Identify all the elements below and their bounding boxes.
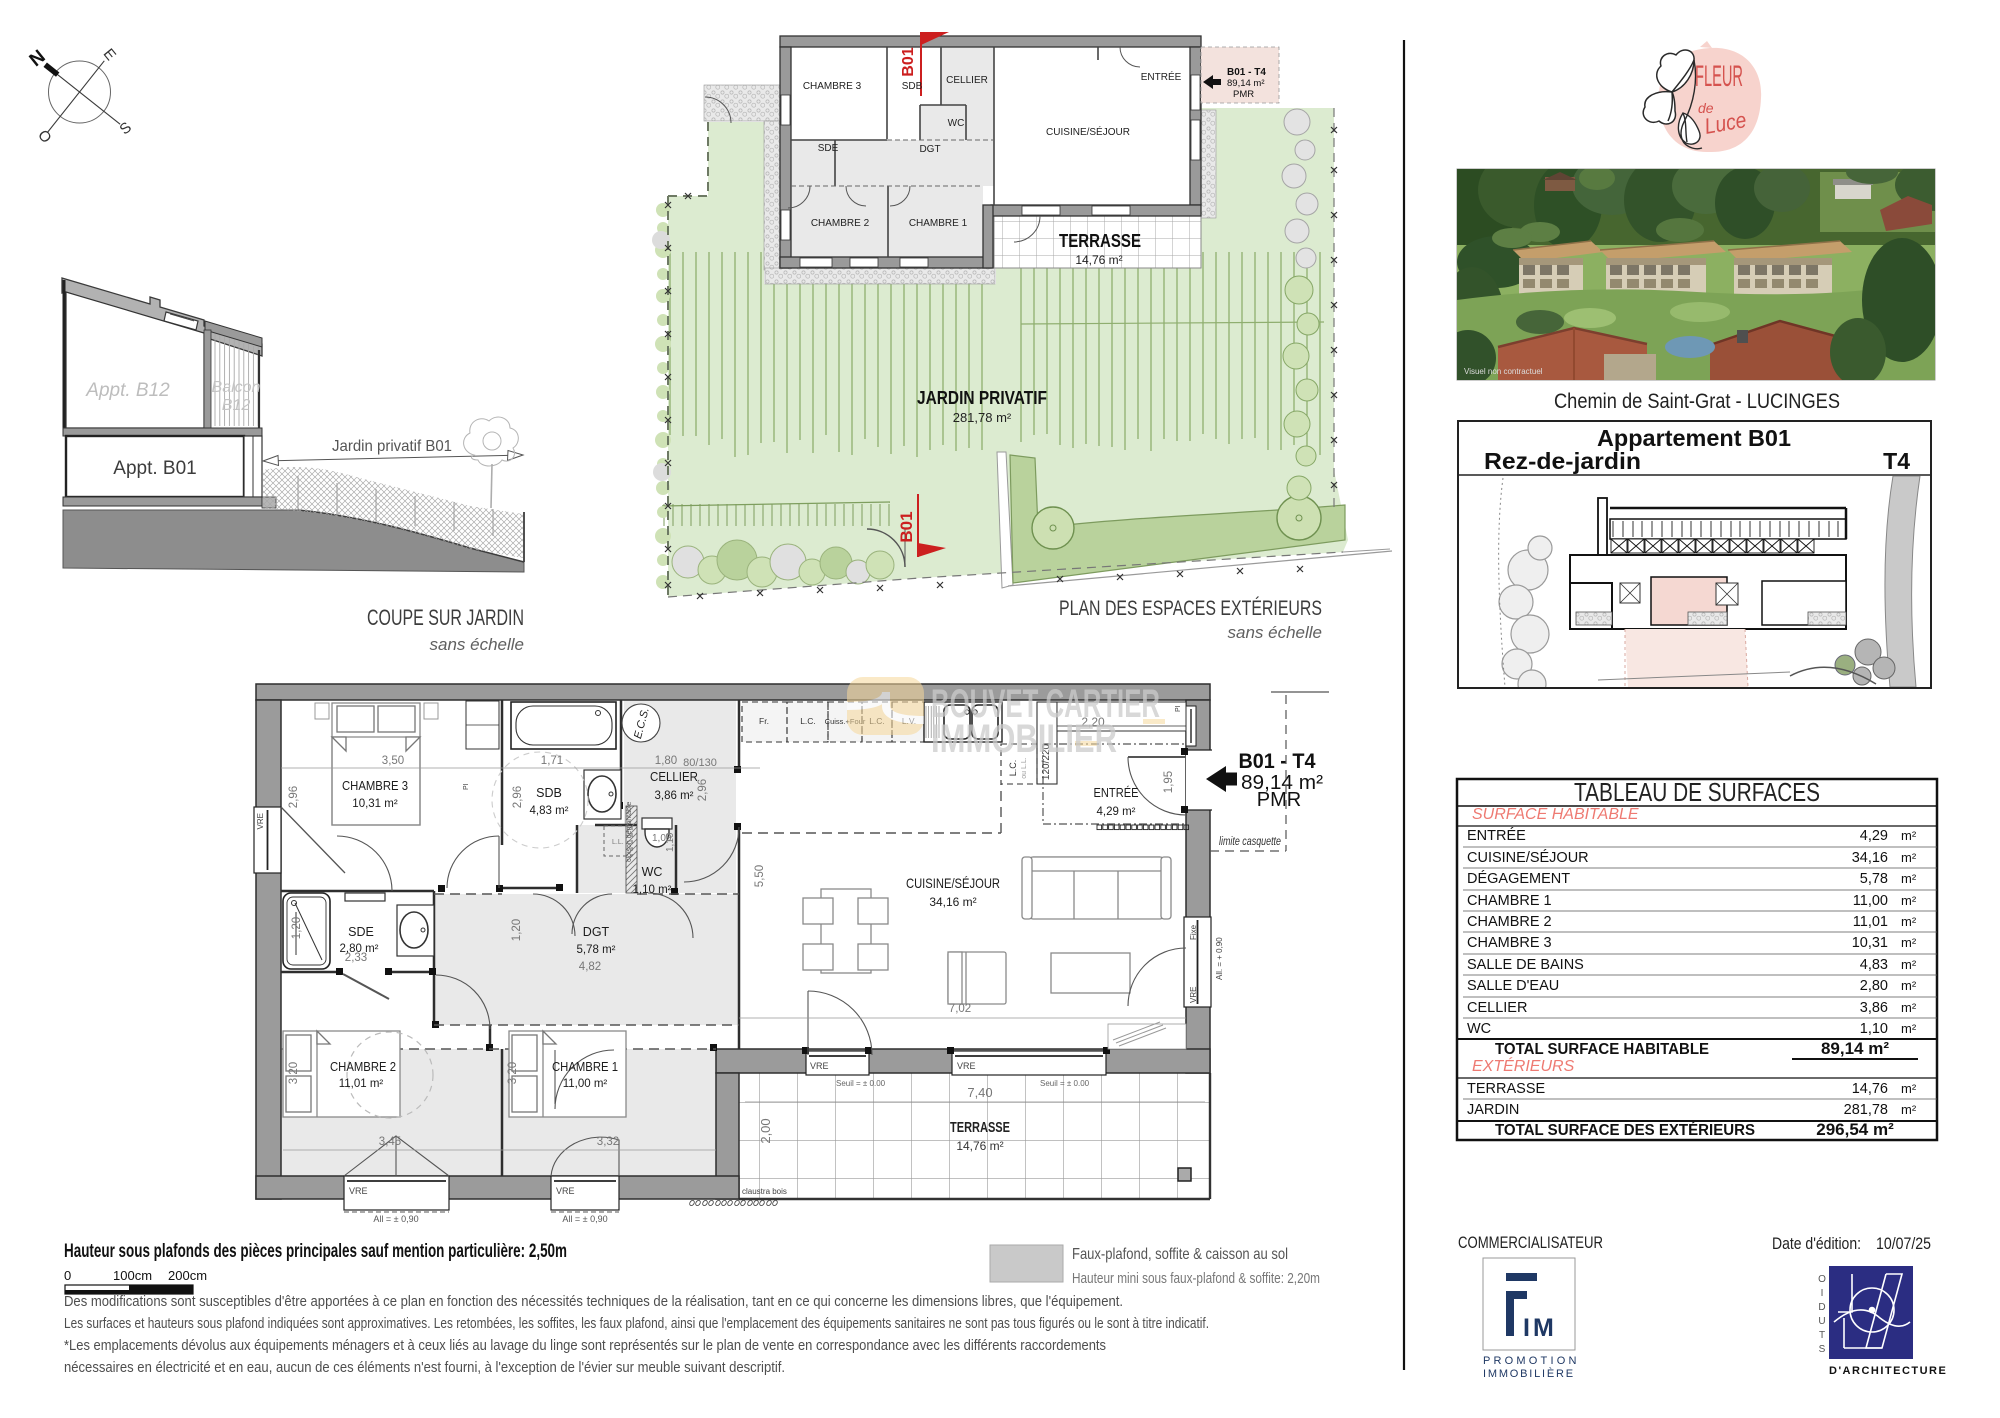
svg-text:VRE: VRE (556, 1186, 575, 1196)
svg-text:WC: WC (948, 118, 965, 129)
svg-text:SURFACE HABITABLE: SURFACE HABITABLE (1472, 806, 1639, 823)
svg-text:CELLIER: CELLIER (1467, 1000, 1527, 1016)
svg-text:100cm: 100cm (113, 1268, 152, 1283)
svg-text:m²: m² (1901, 828, 1917, 843)
svg-text:Jardin privatif B01: Jardin privatif B01 (332, 438, 452, 455)
svg-text:VRE: VRE (810, 1061, 829, 1071)
svg-text:2,96: 2,96 (288, 786, 300, 808)
svg-text:All = ± 0,90: All = ± 0,90 (373, 1214, 418, 1224)
svg-text:5,50: 5,50 (754, 865, 766, 887)
svg-text:14,76: 14,76 (1852, 1081, 1888, 1097)
svg-text:CUISINE/SÉJOUR: CUISINE/SÉJOUR (906, 875, 1000, 891)
svg-text:sans échelle: sans échelle (1227, 623, 1322, 642)
svg-text:4,82: 4,82 (579, 961, 601, 973)
svg-text:CHAMBRE 3: CHAMBRE 3 (342, 779, 408, 793)
svg-text:TERRASSE: TERRASSE (950, 1119, 1010, 1136)
svg-text:34,16 m²: 34,16 m² (929, 895, 976, 909)
svg-text:Les surfaces et hauteurs sous: Les surfaces et hauteurs sous plafond in… (64, 1315, 1209, 1332)
svg-text:Seuil = ± 0.00: Seuil = ± 0.00 (836, 1079, 886, 1088)
svg-text:14,76 m²: 14,76 m² (956, 1139, 1003, 1153)
svg-text:ENTRÉE: ENTRÉE (1141, 70, 1182, 83)
svg-text:7,02: 7,02 (949, 1003, 971, 1015)
svg-text:COUPE SUR JARDIN: COUPE SUR JARDIN (367, 605, 524, 630)
svg-text:sans échelle: sans échelle (429, 635, 524, 654)
svg-text:14,76 m²: 14,76 m² (1075, 253, 1122, 267)
svg-text:m²: m² (1901, 914, 1917, 929)
svg-text:10,31 m²: 10,31 m² (352, 798, 398, 810)
svg-text:m²: m² (1901, 893, 1917, 908)
svg-text:296,54 m²: 296,54 m² (1816, 1120, 1894, 1139)
svg-text:11,00 m²: 11,00 m² (563, 1078, 608, 1090)
svg-text:m²: m² (1901, 978, 1917, 993)
svg-text:m²: m² (1901, 871, 1917, 886)
svg-text:2,80 m²: 2,80 m² (340, 943, 379, 955)
svg-text:PMR: PMR (1233, 89, 1254, 100)
svg-text:WC: WC (642, 865, 663, 879)
svg-text:Rez-de-jardin: Rez-de-jardin (1484, 448, 1641, 474)
svg-text:1,20: 1,20 (511, 919, 523, 941)
svg-text:200cm: 200cm (168, 1268, 207, 1283)
svg-text:m²: m² (1901, 1081, 1917, 1096)
svg-text:L.C.: L.C. (800, 716, 816, 726)
svg-text:Appt. B12: Appt. B12 (85, 380, 170, 401)
svg-text:PI: PI (463, 783, 470, 790)
svg-text:TOTAL SURFACE DES EXTÉRIEURS: TOTAL SURFACE DES EXTÉRIEURS (1495, 1120, 1755, 1139)
svg-text:4,83 m²: 4,83 m² (530, 805, 569, 817)
svg-text:Visuel non contractuel: Visuel non contractuel (1464, 367, 1543, 376)
svg-text:TERRASSE: TERRASSE (1467, 1081, 1545, 1097)
svg-text:SDE: SDE (818, 143, 839, 154)
svg-text:1,10: 1,10 (1860, 1021, 1888, 1037)
svg-text:1,71: 1,71 (541, 755, 563, 767)
svg-text:5,78: 5,78 (1860, 871, 1888, 887)
svg-text:JARDIN: JARDIN (1467, 1102, 1519, 1118)
svg-text:B12: B12 (222, 397, 251, 414)
svg-text:4,29 m²: 4,29 m² (1097, 806, 1136, 818)
svg-text:3,50: 3,50 (382, 755, 404, 767)
svg-text:89,14 m²: 89,14 m² (1227, 78, 1265, 89)
svg-text:80/130: 80/130 (683, 757, 717, 769)
svg-text:Appt. B01: Appt. B01 (113, 458, 196, 479)
svg-text:limite casquette: limite casquette (1219, 834, 1281, 848)
svg-text:IMMOBILIÈRE: IMMOBILIÈRE (1483, 1367, 1575, 1380)
svg-text:nécessaires en électricité et: nécessaires en électricité et en eau, au… (64, 1359, 785, 1376)
svg-text:3,20: 3,20 (507, 1062, 519, 1084)
svg-text:TERRASSE: TERRASSE (1059, 231, 1141, 251)
svg-text:281,78: 281,78 (1844, 1102, 1888, 1118)
svg-text:VRE: VRE (1189, 987, 1198, 1003)
svg-text:FLEUR: FLEUR (1695, 60, 1743, 93)
svg-text:CHAMBRE 2: CHAMBRE 2 (1467, 914, 1552, 930)
svg-text:Seuil = ± 0.00: Seuil = ± 0.00 (1040, 1079, 1090, 1088)
svg-text:2,00: 2,00 (758, 1118, 773, 1143)
svg-text:0: 0 (64, 1268, 71, 1283)
svg-text:4,29: 4,29 (1860, 828, 1888, 844)
svg-text:CHAMBRE 3: CHAMBRE 3 (803, 81, 862, 92)
svg-text:11,00: 11,00 (1853, 893, 1888, 909)
svg-text:VRE: VRE (957, 1061, 976, 1071)
svg-text:7,40: 7,40 (967, 1085, 992, 1100)
svg-text:1,10: 1,10 (665, 832, 676, 852)
svg-text:I: I (1821, 1288, 1824, 1299)
svg-text:5,78 m²: 5,78 m² (577, 944, 616, 956)
svg-text:3,86 m²: 3,86 m² (655, 790, 694, 802)
svg-text:2,80: 2,80 (1860, 978, 1888, 994)
svg-text:B01 - T4: B01 - T4 (1227, 67, 1266, 78)
svg-text:T: T (1819, 1330, 1825, 1341)
svg-text:1,95: 1,95 (1163, 771, 1175, 793)
svg-text:ENTRÉE: ENTRÉE (1094, 785, 1139, 800)
svg-text:m²: m² (1901, 1000, 1917, 1015)
svg-text:TOTAL SURFACE HABITABLE: TOTAL SURFACE HABITABLE (1495, 1041, 1709, 1058)
svg-text:34,16: 34,16 (1852, 850, 1888, 866)
svg-text:All = ± 0,90: All = ± 0,90 (562, 1214, 607, 1224)
svg-text:CELLIER: CELLIER (946, 75, 988, 86)
svg-text:m²: m² (1901, 935, 1917, 950)
svg-text:Hauteur mini sous faux-plafond: Hauteur mini sous faux-plafond & soffite… (1072, 1270, 1320, 1287)
svg-text:T4: T4 (1883, 448, 1910, 474)
svg-text:L.C.: L.C. (1008, 760, 1018, 777)
svg-text:m²: m² (1901, 1102, 1917, 1117)
svg-text:m²: m² (1901, 850, 1917, 865)
svg-text:CHAMBRE 1: CHAMBRE 1 (1467, 893, 1552, 909)
svg-text:cloison démontable: cloison démontable (626, 802, 633, 862)
svg-text:L.L.: L.L. (612, 839, 624, 846)
svg-text:1,10 m²: 1,10 m² (633, 884, 672, 896)
svg-text:Fr.: Fr. (759, 716, 769, 726)
svg-text:10,31: 10,31 (1852, 935, 1888, 951)
svg-text:CUISINE/SÉJOUR: CUISINE/SÉJOUR (1046, 125, 1130, 138)
svg-text:Hauteur sous plafonds des pièc: Hauteur sous plafonds des pièces princip… (64, 1241, 567, 1262)
svg-text:Faux-plafond, soffite & caisso: Faux-plafond, soffite & caisson au sol (1072, 1246, 1288, 1263)
svg-text:ENTRÉE: ENTRÉE (1467, 827, 1526, 844)
svg-text:SALLE DE BAINS: SALLE DE BAINS (1467, 957, 1584, 973)
svg-text:All. = + 0,90: All. = + 0,90 (1215, 937, 1224, 980)
svg-text:SDB: SDB (536, 786, 562, 800)
svg-text:4,83: 4,83 (1860, 957, 1888, 973)
svg-text:CELLIER: CELLIER (650, 770, 698, 784)
svg-text:B01 - T4: B01 - T4 (1239, 750, 1316, 773)
svg-text:SALLE D'EAU: SALLE D'EAU (1467, 978, 1559, 994)
svg-text:89,14 m²: 89,14 m² (1821, 1039, 1889, 1058)
svg-text:*Les emplacements dévolus aux: *Les emplacements dévolus aux équipement… (64, 1337, 1106, 1354)
svg-text:SDB: SDB (902, 81, 923, 92)
svg-text:claustra bois: claustra bois (742, 1187, 787, 1196)
svg-text:COMMERCIALISATEUR: COMMERCIALISATEUR (1458, 1233, 1603, 1252)
svg-text:WC: WC (1467, 1021, 1491, 1037)
svg-text:B01: B01 (897, 511, 916, 542)
svg-text:O: O (1818, 1274, 1826, 1285)
svg-text:IM: IM (1523, 1314, 1557, 1342)
svg-text:3,20: 3,20 (288, 1062, 300, 1084)
svg-text:3,45: 3,45 (379, 1136, 401, 1148)
svg-text:m²: m² (1901, 957, 1917, 972)
svg-text:DGT: DGT (919, 144, 940, 155)
svg-text:JARDIN PRIVATIF: JARDIN PRIVATIF (917, 388, 1047, 408)
svg-text:VRE: VRE (256, 813, 265, 829)
svg-text:PROMOTION: PROMOTION (1483, 1355, 1580, 1367)
svg-text:EXTÉRIEURS: EXTÉRIEURS (1472, 1056, 1575, 1075)
svg-text:S: S (1819, 1344, 1826, 1355)
svg-text:DÉGAGEMENT: DÉGAGEMENT (1467, 870, 1570, 887)
svg-text:m²: m² (1901, 1021, 1917, 1036)
svg-text:B01: B01 (900, 47, 917, 76)
svg-text:D'ARCHITECTURE: D'ARCHITECTURE (1829, 1365, 1947, 1377)
svg-text:11,01 m²: 11,01 m² (339, 1078, 384, 1090)
svg-text:U: U (1818, 1316, 1825, 1327)
svg-text:2,96: 2,96 (512, 786, 524, 808)
svg-text:D: D (1818, 1302, 1825, 1313)
svg-text:VRE: VRE (349, 1186, 368, 1196)
svg-text:CHAMBRE 2: CHAMBRE 2 (811, 218, 870, 229)
svg-text:CHAMBRE 2: CHAMBRE 2 (330, 1060, 396, 1074)
svg-text:TABLEAU DE SURFACES: TABLEAU DE SURFACES (1574, 777, 1820, 807)
svg-text:Fixe: Fixe (1189, 924, 1198, 940)
svg-text:PI: PI (1175, 705, 1182, 712)
svg-text:Chemin de Saint-Grat - LUCINGE: Chemin de Saint-Grat - LUCINGES (1554, 390, 1840, 413)
svg-text:PLAN DES ESPACES EXTÉRIEURS: PLAN DES ESPACES EXTÉRIEURS (1059, 597, 1322, 620)
svg-text:1,20: 1,20 (291, 917, 303, 939)
svg-text:CUISINE/SÉJOUR: CUISINE/SÉJOUR (1467, 849, 1589, 866)
svg-text:Balcon: Balcon (212, 379, 261, 396)
svg-text:CHAMBRE 1: CHAMBRE 1 (552, 1060, 618, 1074)
svg-text:1,80: 1,80 (655, 755, 677, 767)
svg-text:PMR: PMR (1257, 789, 1301, 811)
svg-text:IMMOBILIER: IMMOBILIER (931, 717, 1117, 761)
svg-text:3,86: 3,86 (1860, 1000, 1888, 1016)
svg-text:281,78 m²: 281,78 m² (953, 410, 1012, 425)
svg-text:11,01: 11,01 (1853, 914, 1888, 930)
svg-text:CHAMBRE 1: CHAMBRE 1 (909, 218, 968, 229)
svg-text:Des modifications sont suscept: Des modifications sont susceptibles d'êt… (64, 1293, 1123, 1310)
svg-text:3,32: 3,32 (597, 1136, 619, 1148)
svg-text:DGT: DGT (583, 925, 610, 939)
svg-text:SDE: SDE (348, 925, 374, 939)
svg-text:CHAMBRE 3: CHAMBRE 3 (1467, 935, 1552, 951)
svg-text:2,96: 2,96 (697, 779, 709, 801)
svg-text:Date d'édition:: Date d'édition: (1772, 1234, 1861, 1253)
svg-text:10/07/25: 10/07/25 (1876, 1234, 1931, 1253)
